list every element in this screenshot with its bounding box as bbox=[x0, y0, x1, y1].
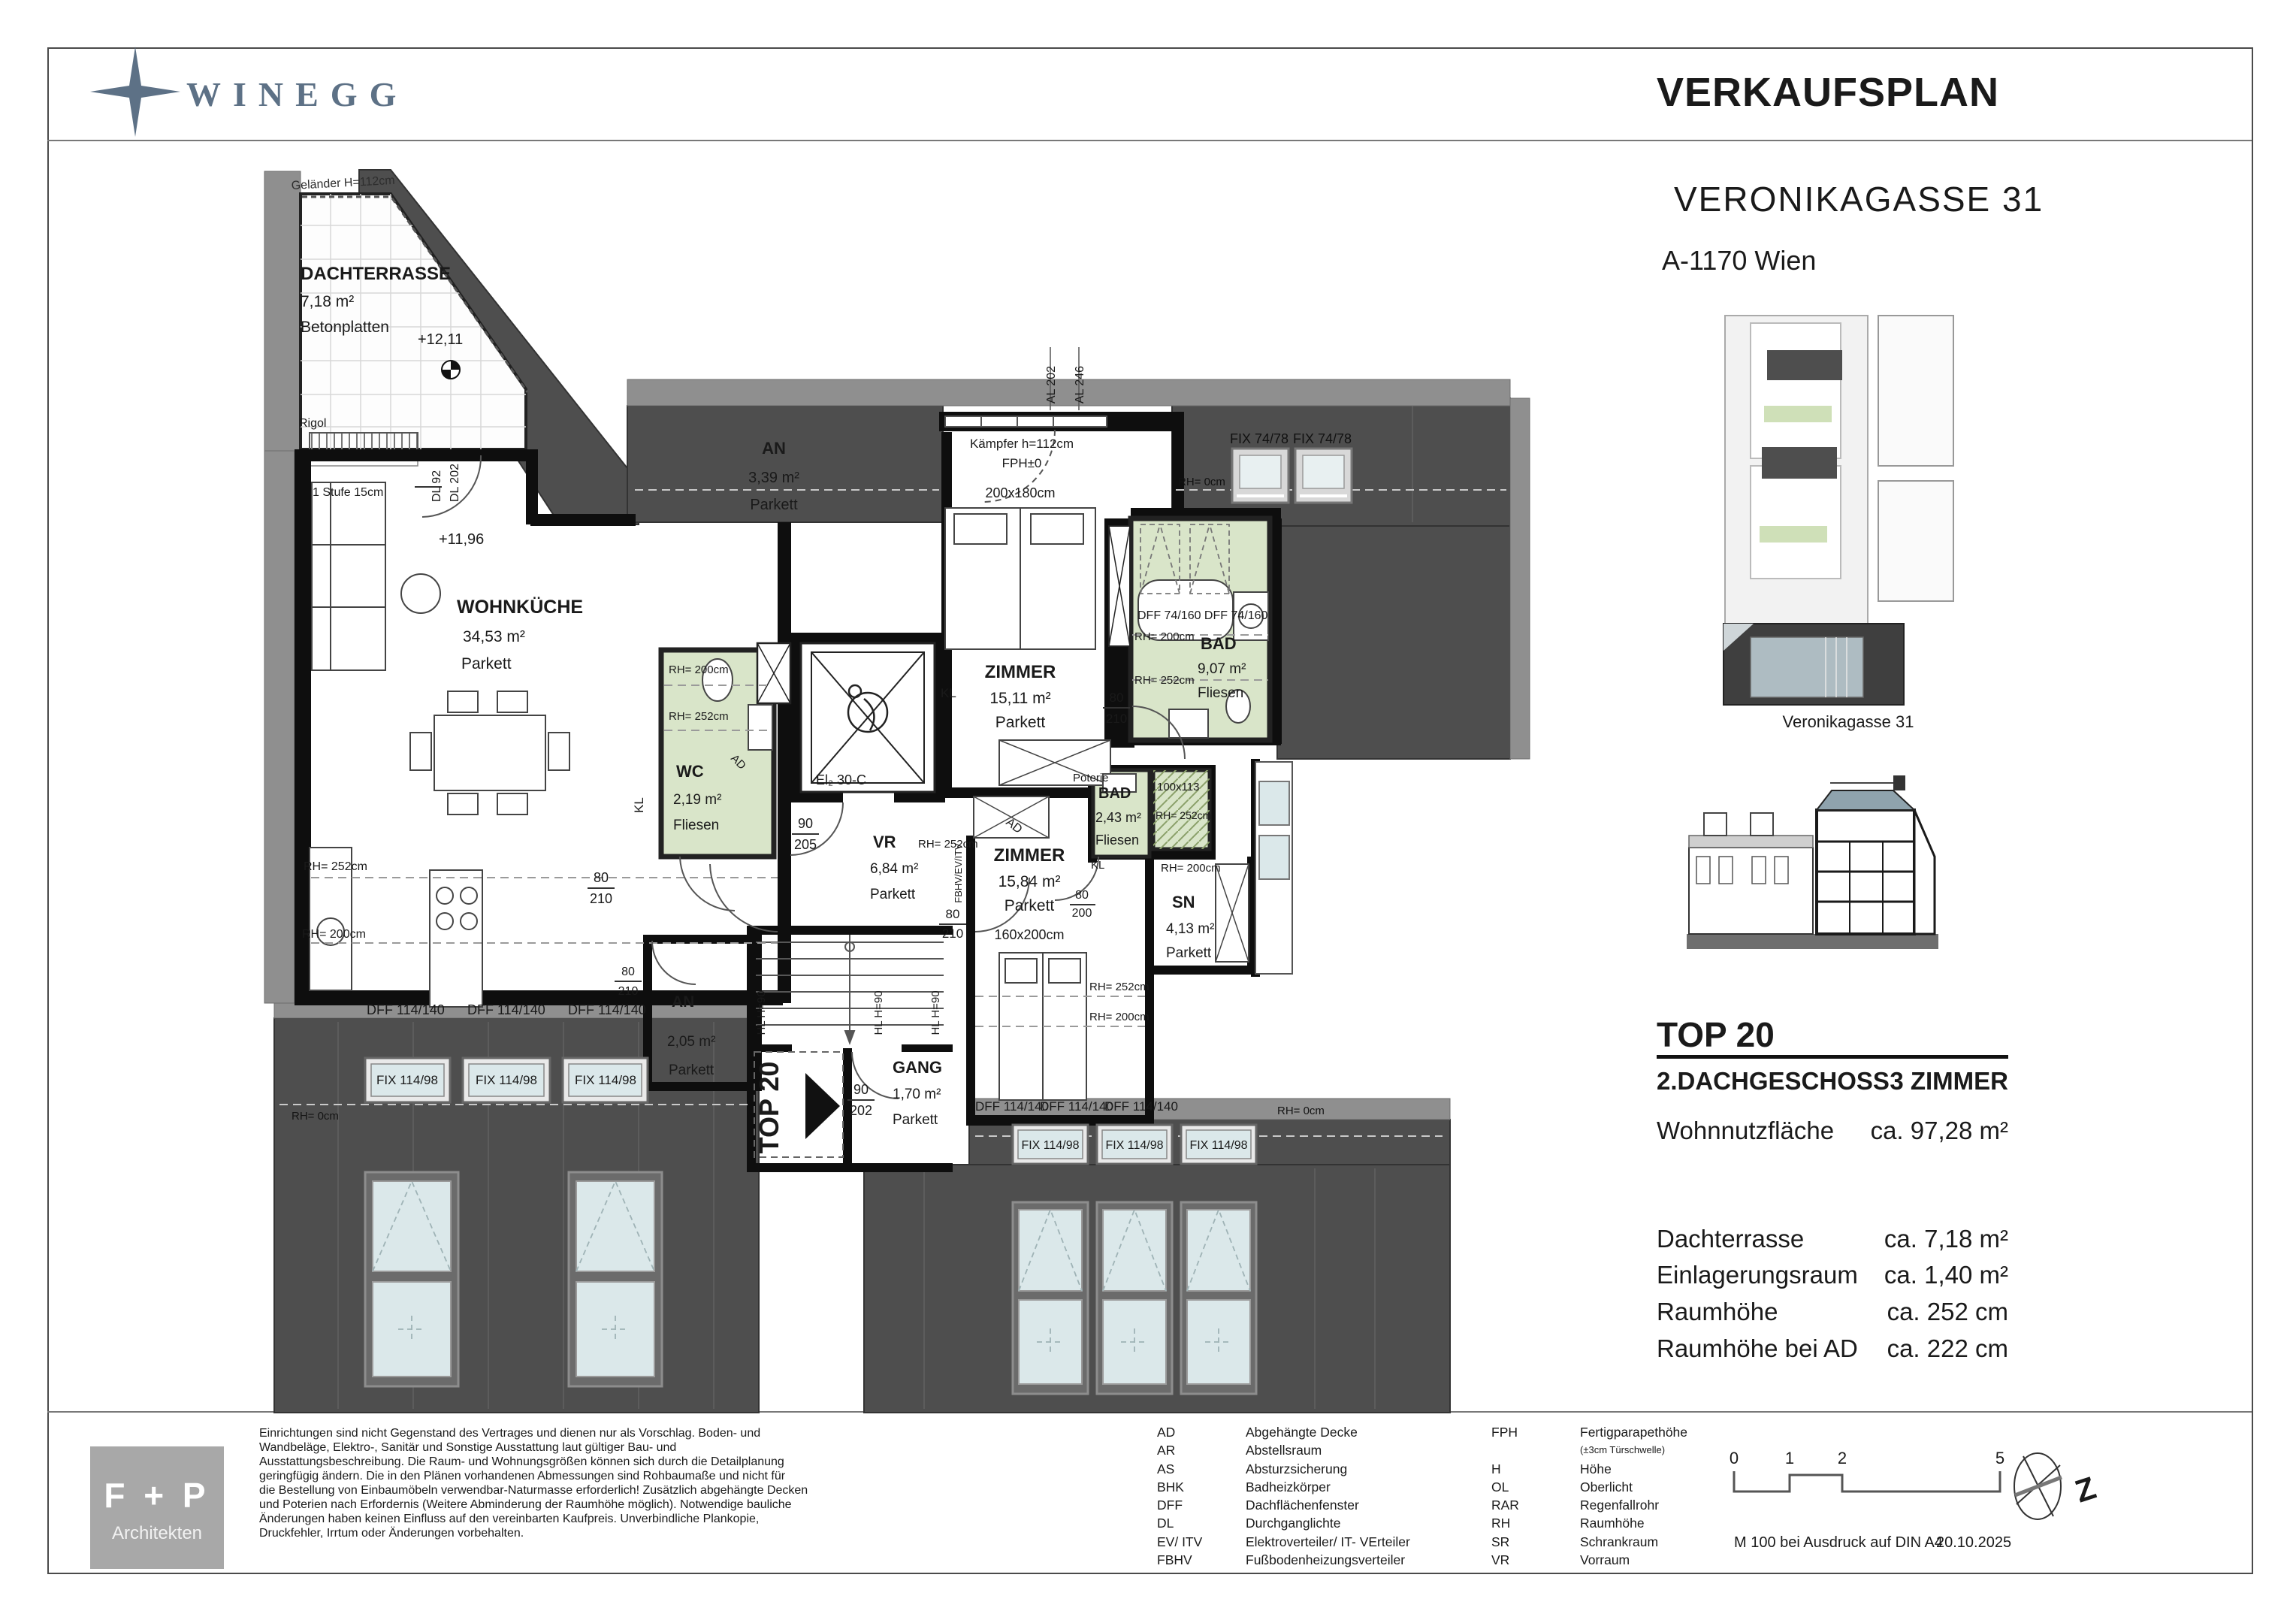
room-sn-floor: Parkett bbox=[1166, 945, 1212, 961]
label-fbhv: FBHV/EV/ITV bbox=[953, 843, 964, 903]
label-kl: KL bbox=[1091, 859, 1104, 872]
room-bad2-area: 2,43 m² bbox=[1095, 810, 1141, 825]
roof-right bbox=[1277, 526, 1510, 759]
scale-bar bbox=[1734, 1471, 2000, 1492]
scale-tick: 2 bbox=[1838, 1449, 1847, 1467]
room-sn-area: 4,13 m² bbox=[1166, 921, 1214, 937]
room-bad2-floor: Fliesen bbox=[1095, 833, 1139, 848]
label-rh: RH= 252cm bbox=[1156, 809, 1211, 821]
label-rh: RH= 200cm bbox=[1134, 630, 1195, 643]
room-bad1-floor: Fliesen bbox=[1198, 685, 1243, 701]
label-rh: RH= 0cm bbox=[1178, 476, 1225, 488]
dim-door: 80 bbox=[1110, 691, 1124, 705]
label-dff: DFF 114/140 bbox=[467, 1002, 545, 1017]
label-dff: DFF 114/140 bbox=[1104, 1099, 1178, 1114]
label-rh: RH= 252cm bbox=[669, 710, 729, 723]
label-kl: KL bbox=[941, 686, 956, 700]
room-zimmer2-area: 15,84 m² bbox=[998, 873, 1061, 890]
room-zimmer1-floor: Parkett bbox=[995, 714, 1046, 731]
label-dff: DFF 114/140 bbox=[367, 1002, 445, 1017]
rigol-strip bbox=[310, 433, 418, 451]
dim-door: 210 bbox=[1106, 712, 1127, 726]
label-fix11498: FIX 114/98 bbox=[1105, 1139, 1163, 1152]
room-dachterrasse-name: DACHTERRASSE bbox=[301, 264, 451, 284]
label-rh: RH= 252cm bbox=[1089, 981, 1150, 993]
pillow bbox=[954, 514, 1007, 544]
room-wc-name: WC bbox=[676, 762, 704, 781]
room-vr-area: 6,84 m² bbox=[870, 861, 918, 877]
label-dl92: DL 92 bbox=[430, 470, 443, 502]
verkaufsplan-sheet: WINEGG VERKAUFSPLAN VERONIKAGASSE 31 A-1… bbox=[0, 0, 2296, 1623]
label-al246: AL 246 bbox=[1074, 366, 1086, 403]
dim-door: 202 bbox=[850, 1103, 872, 1118]
label-poterie: Poterie bbox=[1073, 772, 1109, 784]
pillow bbox=[1031, 514, 1083, 544]
room-wc-area: 2,19 m² bbox=[673, 792, 721, 808]
label-dff: DFF 114/140 bbox=[568, 1002, 646, 1017]
dim-door: 210 bbox=[618, 985, 639, 998]
dining-table bbox=[434, 715, 545, 790]
dim-door: 205 bbox=[794, 837, 817, 852]
room-bad1-name: BAD bbox=[1201, 634, 1237, 653]
room-vr-floor: Parkett bbox=[870, 887, 916, 902]
label-shaft-dim: 100x113 bbox=[1157, 781, 1199, 793]
label-hl: HL H=90 bbox=[755, 990, 768, 1035]
pillow bbox=[1049, 959, 1080, 983]
label-kl: KL bbox=[632, 797, 646, 813]
room-gang-floor: Parkett bbox=[893, 1112, 938, 1128]
entrance-arrow bbox=[805, 1073, 840, 1139]
room-an2-floor: Parkett bbox=[669, 1062, 714, 1078]
dim-door: 90 bbox=[798, 816, 813, 831]
label-rh: RH= 200cm bbox=[1089, 1011, 1150, 1023]
sink-wc bbox=[748, 705, 772, 750]
label-rh: RH= 0cm bbox=[1277, 1105, 1325, 1117]
label-fix7478: FIX 74/78 bbox=[1230, 431, 1288, 446]
site-plan bbox=[1724, 316, 1953, 705]
dim-door: 80 bbox=[946, 907, 960, 921]
scale-tick: 0 bbox=[1730, 1449, 1739, 1467]
label-rh: RH= 200cm bbox=[302, 928, 366, 941]
label-fix11498: FIX 114/98 bbox=[476, 1073, 537, 1087]
dim-door: 210 bbox=[590, 891, 612, 906]
label-al202: AL 202 bbox=[1045, 366, 1058, 403]
label-fix11498: FIX 114/98 bbox=[1021, 1139, 1079, 1152]
label-dff: DFF 114/140 bbox=[1040, 1099, 1113, 1114]
label-top20: TOP 20 bbox=[754, 1062, 784, 1154]
scale-tick: 5 bbox=[1995, 1449, 2004, 1467]
right-facade bbox=[1255, 762, 1292, 974]
room-sn-name: SN bbox=[1172, 893, 1195, 911]
label-dff: DFF 114/140 bbox=[975, 1099, 1049, 1114]
room-an1-floor: Parkett bbox=[750, 497, 798, 513]
room-vr-name: VR bbox=[873, 833, 896, 851]
room-zimmer2-floor: Parkett bbox=[1005, 897, 1055, 914]
label-dl202: DL 202 bbox=[449, 464, 461, 502]
label-fph: FPH±0 bbox=[1002, 456, 1042, 470]
label-level-kitchen: +11,96 bbox=[439, 531, 484, 548]
label-stufe: 1 Stufe 15cm bbox=[313, 486, 383, 499]
north-letter: Z bbox=[2071, 1470, 2100, 1510]
scale-tick: 1 bbox=[1785, 1449, 1794, 1467]
room-an1-name: AN bbox=[762, 439, 786, 458]
terrace-door-band bbox=[945, 416, 1107, 427]
pillow bbox=[1005, 959, 1037, 983]
label-rh: RH= 252cm bbox=[918, 838, 978, 851]
room-an2-name: AN bbox=[672, 993, 694, 1011]
room-zimmer2-name: ZIMMER bbox=[994, 845, 1065, 866]
room-wohnkueche-floor: Parkett bbox=[461, 655, 512, 672]
label-fix7478: FIX 74/78 bbox=[1293, 431, 1352, 446]
room-dachterrasse-floor: Betonplatten bbox=[301, 319, 389, 336]
dim-door: 90 bbox=[853, 1082, 869, 1097]
label-elevator: El₂ 30-C bbox=[816, 772, 866, 787]
room-zimmer1-name: ZIMMER bbox=[985, 662, 1056, 682]
label-fix11498: FIX 114/98 bbox=[575, 1073, 636, 1087]
floorplan-drawing: Geländer H=112cmDACHTERRASSE7,18 m²Beton… bbox=[0, 0, 2296, 1623]
room-bad1-area: 9,07 m² bbox=[1198, 661, 1246, 677]
label-rh: RH= 252cm bbox=[1134, 674, 1195, 687]
room-gang-area: 1,70 m² bbox=[893, 1087, 941, 1102]
sofa bbox=[312, 482, 385, 670]
label-rigol: Rigol bbox=[299, 417, 326, 430]
dim-door: 80 bbox=[1075, 889, 1089, 902]
label-rh: RH= 0cm bbox=[292, 1110, 339, 1123]
label-kaempfer: Kämpfer h=112cm bbox=[970, 437, 1074, 451]
dim-door: 80 bbox=[621, 966, 635, 978]
room-an2-area: 2,05 m² bbox=[667, 1034, 715, 1050]
room-zimmer1-area: 15,11 m² bbox=[989, 690, 1050, 707]
dim-bed2: 160x200cm bbox=[994, 927, 1064, 942]
label-hl: HL H=90 bbox=[872, 990, 885, 1035]
label-rh: RH= 200cm bbox=[1161, 862, 1221, 875]
room-wc-floor: Fliesen bbox=[673, 818, 719, 833]
room-wohnkueche-area: 34,53 m² bbox=[463, 628, 525, 645]
dim-door: 80 bbox=[594, 870, 609, 885]
label-dff74160: DFF 74/160 DFF 74/160 bbox=[1137, 609, 1268, 622]
north-compass-icon bbox=[2014, 1453, 2062, 1519]
section-unit-highlight bbox=[1817, 790, 1914, 810]
room-dachterrasse-area: 7,18 m² bbox=[301, 293, 354, 310]
label-level-terrace: +12,11 bbox=[418, 331, 463, 348]
dim-door: 210 bbox=[942, 926, 963, 941]
burner bbox=[437, 887, 453, 904]
label-rh: RH= 200cm bbox=[669, 663, 729, 676]
room-wohnkueche-name: WOHNKÜCHE bbox=[457, 596, 583, 618]
label-rh: RH= 252cm bbox=[304, 860, 367, 873]
room-gang-name: GANG bbox=[893, 1058, 942, 1077]
label-fix11498: FIX 114/98 bbox=[1189, 1139, 1247, 1152]
room-an1-area: 3,39 m² bbox=[748, 470, 799, 486]
label-hl: HL H=90 bbox=[929, 990, 942, 1035]
lamp bbox=[401, 574, 440, 613]
building-section bbox=[1687, 775, 1938, 949]
dim-door: 200 bbox=[1072, 907, 1092, 920]
sink-bad1 bbox=[1169, 709, 1208, 738]
label-fix11498: FIX 114/98 bbox=[376, 1073, 438, 1087]
dim-bed1: 200x180cm bbox=[985, 485, 1055, 500]
room-bad2-name: BAD bbox=[1098, 785, 1131, 802]
